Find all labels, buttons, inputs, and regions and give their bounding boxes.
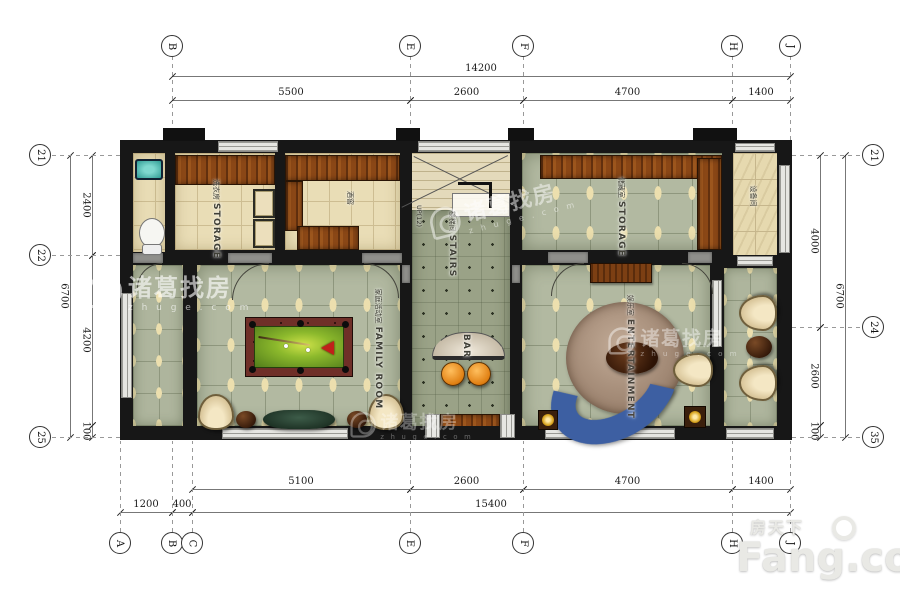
billiard-rack: [321, 341, 334, 355]
grid-centerline: [410, 441, 411, 532]
dryer: [253, 219, 275, 248]
dimension-line: [410, 489, 523, 490]
dimension-label: 14200: [465, 63, 497, 74]
dimension-line: [410, 100, 523, 101]
pool-table: [245, 317, 353, 377]
grid-bubble-bottom: C: [181, 532, 203, 554]
grid-bubble-top: E: [399, 35, 421, 57]
grid-bubble-bottom: A: [109, 532, 131, 554]
room-label-entertainment: 娱乐室ENTERTAINMENT: [625, 295, 635, 419]
dimension-line: [70, 155, 71, 437]
dimension-line: [820, 327, 821, 425]
wall-opening: [402, 265, 410, 283]
dimension-label: 5100: [288, 476, 313, 487]
side-table: [236, 411, 256, 428]
dimension-label: 15400: [475, 499, 507, 510]
pool-pocket: [342, 366, 349, 373]
door-threshold: [362, 253, 402, 263]
window: [418, 141, 510, 152]
stair-handrail: [458, 182, 492, 185]
window: [726, 428, 774, 439]
dimension-line: [845, 155, 846, 437]
grid-centerline: [792, 155, 862, 156]
dimension-label: 2600: [454, 87, 479, 98]
grid-centerline: [52, 255, 120, 256]
room-label-bar: BAR: [461, 334, 471, 358]
dimension-line: [120, 512, 172, 513]
room-label-storage: 储藏室STORAGE: [616, 177, 626, 257]
dimension-label: 4000: [809, 228, 820, 253]
wall-equipment-left: [722, 153, 733, 265]
lamp: [542, 414, 554, 426]
dimension-line: [192, 512, 790, 513]
dimension-label: 2400: [81, 192, 92, 217]
grid-bubble-left: 21: [29, 144, 51, 166]
corridor-floor: [133, 265, 183, 426]
storage-shelf-top: [540, 155, 722, 179]
terrace-table: [746, 336, 772, 358]
grid-bubble-right: 21: [862, 144, 884, 166]
window: [222, 428, 348, 439]
dimension-label: 400: [172, 499, 191, 510]
dimension-line: [92, 255, 93, 425]
console-table: [590, 263, 652, 283]
pool-pocket: [342, 321, 349, 328]
grid-centerline: [52, 155, 120, 156]
wall-pier: [693, 128, 737, 141]
bench: [263, 410, 335, 429]
lamp-table: [538, 410, 558, 430]
dimension-line: [732, 100, 790, 101]
grid-centerline: [790, 57, 791, 140]
dimension-line: [172, 76, 790, 77]
grid-bubble-top: J: [779, 35, 801, 57]
dimension-label: 2600: [809, 363, 820, 388]
dimension-label: 4700: [615, 87, 640, 98]
bar-stool: [467, 362, 491, 386]
pool-pocket: [249, 321, 256, 328]
wall-wc-right: [165, 153, 175, 265]
room-label-wine-cellar: 酒窖: [345, 191, 355, 205]
side-table: [347, 411, 367, 428]
dimension-line: [172, 512, 192, 513]
grid-bubble-bottom: E: [399, 532, 421, 554]
dimension-line: [172, 100, 410, 101]
dimension-label: 4200: [81, 327, 92, 352]
dimension-label: 1400: [748, 476, 773, 487]
door-threshold: [548, 252, 588, 263]
sink: [135, 159, 163, 180]
dimension-line: [523, 100, 732, 101]
room-label-equipment: 设备间: [748, 186, 758, 207]
window: [121, 293, 132, 398]
bar-stool: [441, 362, 465, 386]
stair-handrail: [489, 182, 492, 208]
dimension-label: 6700: [59, 283, 70, 308]
lamp: [689, 411, 701, 423]
window: [779, 165, 790, 253]
grid-bubble-top: F: [512, 35, 534, 57]
door-threshold: [688, 252, 712, 263]
wine-rack-top: [285, 155, 400, 181]
window: [735, 143, 775, 152]
zhuge-logo-icon: [88, 274, 122, 308]
window: [218, 141, 278, 152]
grid-bubble-right: 24: [862, 316, 884, 338]
room-label-stairs: 楼梯间STAIRS: [447, 211, 457, 278]
washer: [253, 189, 275, 218]
grid-bubble-top: B: [161, 35, 183, 57]
pool-pocket: [249, 366, 256, 373]
grid-centerline: [792, 327, 862, 328]
wine-rack-bottom: [297, 226, 359, 250]
dimension-line: [820, 155, 821, 327]
grid-centerline: [523, 441, 524, 532]
toilet-base: [142, 244, 162, 255]
grid-centerline: [172, 441, 173, 532]
window: [737, 256, 773, 266]
grid-bubble-left: 22: [29, 244, 51, 266]
door-mullion: [425, 414, 440, 438]
grid-bubble-left: 25: [29, 426, 51, 448]
fang-logo-ring-icon: [832, 516, 856, 540]
dimension-label: 5500: [278, 87, 303, 98]
wall-pier: [163, 128, 205, 141]
pool-pocket: [297, 320, 304, 327]
room-label-laundry: 洗衣房STORAGE: [211, 179, 221, 259]
grid-centerline: [120, 441, 121, 532]
wall-stairs-left: [400, 153, 412, 426]
dimension-label: 6700: [834, 283, 845, 308]
grid-centerline: [792, 437, 862, 438]
stairs-up-label: UP(12): [415, 205, 423, 227]
billiard-ball: [306, 348, 310, 352]
stair-break: [452, 193, 510, 217]
room-label-family: 家庭活动室FAMILY ROOM: [373, 289, 383, 410]
dimension-label: 1400: [748, 87, 773, 98]
grid-centerline: [732, 441, 733, 532]
dimension-line: [92, 155, 93, 255]
grid-bubble-bottom: F: [512, 532, 534, 554]
wall-pier: [508, 128, 534, 141]
bar-corridor-floor: [412, 210, 510, 426]
grid-bubble-bottom: B: [161, 532, 183, 554]
door-threshold: [228, 253, 272, 263]
storage-shelf-right: [697, 158, 722, 250]
dimension-line: [192, 489, 410, 490]
armchair: [198, 394, 234, 430]
wall-opening: [512, 265, 520, 283]
dimension-label: 2600: [454, 476, 479, 487]
door-mullion: [500, 414, 515, 438]
fang-logo: 房天下 Fang.com: [736, 514, 900, 594]
dimension-label: 1200: [133, 499, 158, 510]
wall-laundry-wine: [275, 153, 285, 250]
wine-rack-left: [285, 181, 303, 231]
floor-plan-canvas: 1420055002600470014005100260047001400120…: [0, 0, 900, 600]
wall-pier: [396, 128, 420, 141]
dimension-label: 4700: [615, 476, 640, 487]
laundry-cabinet-wood: [175, 155, 275, 185]
wall-stairs-right: [510, 153, 522, 426]
window: [712, 280, 722, 347]
lamp-table: [684, 406, 706, 428]
dimension-line: [732, 489, 790, 490]
grid-centerline: [192, 441, 193, 532]
grid-centerline: [52, 437, 120, 438]
fang-logo-en: Fang.com: [736, 538, 900, 578]
wall-corridor-family: [183, 265, 197, 426]
billiard-ball: [284, 344, 288, 348]
grid-bubble-right: 35: [862, 426, 884, 448]
dimension-line: [523, 489, 732, 490]
grid-bubble-top: H: [721, 35, 743, 57]
pool-pocket: [297, 367, 304, 374]
